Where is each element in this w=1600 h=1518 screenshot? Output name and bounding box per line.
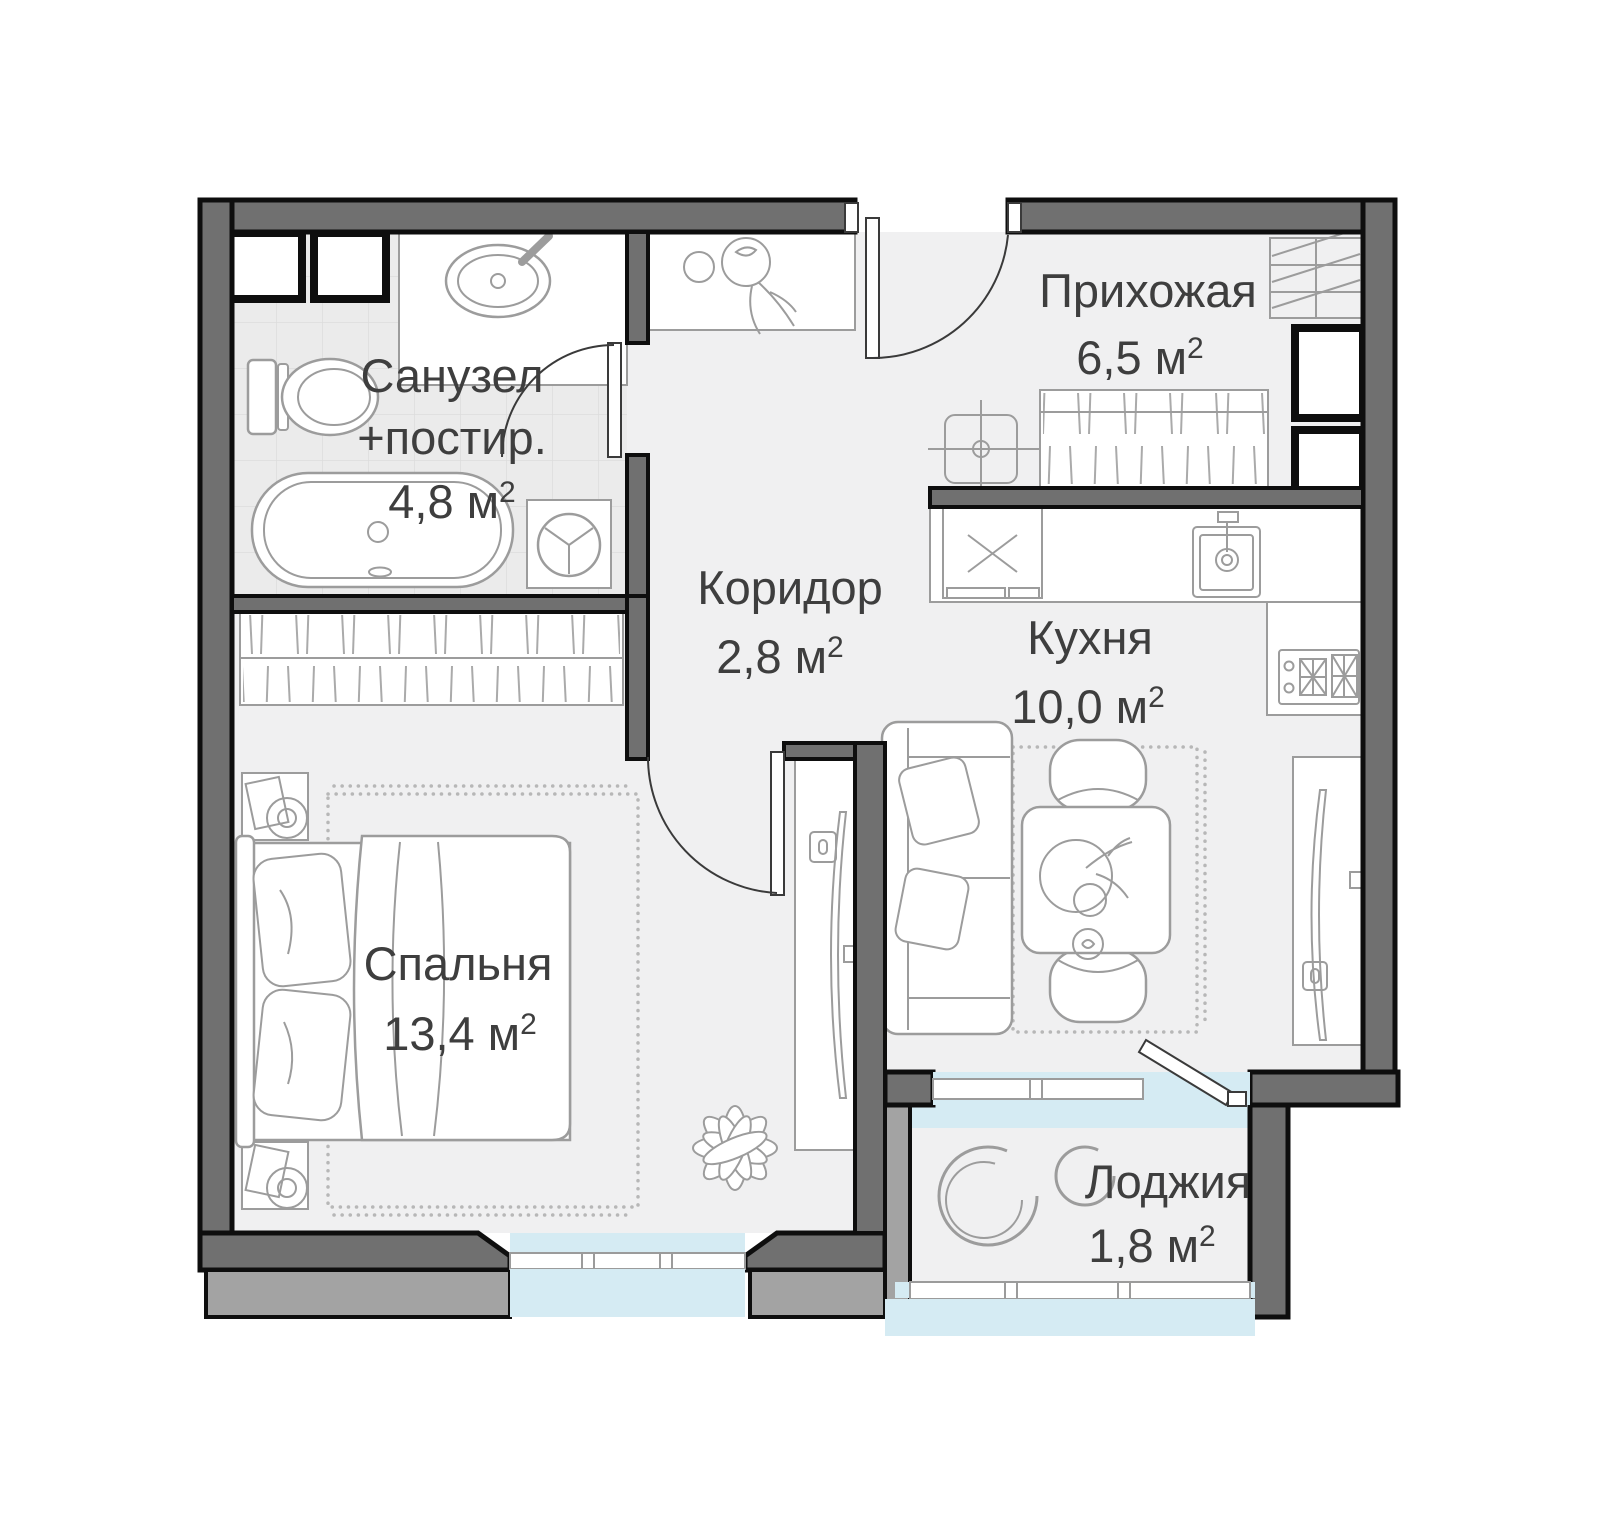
bedroom-tv-unit [795, 760, 856, 1150]
loggia-window-frame [910, 1282, 1250, 1299]
bathroom-east-wall-lower [627, 455, 648, 596]
appliance-x-icon [943, 507, 1042, 598]
wall-bottom-mid [745, 1233, 885, 1270]
loggia-top-sill [895, 1102, 1255, 1128]
nightstand-top [242, 773, 308, 840]
sofa-pillow-2 [894, 867, 971, 952]
loggia-right-wall [1250, 1105, 1288, 1317]
window-mullion [1030, 1079, 1042, 1099]
floor-plan-svg: Санузел +постир. 4,8 м2 Прихожая 6,5 м2 … [0, 0, 1600, 1518]
bedroom-label: Спальня [364, 937, 553, 990]
nightstand-bottom [242, 1142, 308, 1209]
bathroom-door-leaf [608, 343, 621, 457]
wall-left [200, 200, 232, 1270]
bedroom-area-label: 13,4 м2 [383, 1007, 537, 1060]
floorplan-page: Санузел +постир. 4,8 м2 Прихожая 6,5 м2 … [0, 0, 1600, 1518]
plant-icon [693, 1106, 777, 1190]
kitchen-bottom-stub [885, 1072, 933, 1105]
hallway-wardrobe-hangers [1043, 393, 1265, 484]
bathroom-closet-1 [224, 233, 302, 299]
corridor-label: Коридор [697, 561, 883, 614]
kitchen-area-label: 10,0 м2 [1011, 680, 1165, 733]
bedroom-window-outer [510, 1269, 745, 1317]
window-mullion [1118, 1282, 1130, 1299]
hallway-label: Прихожая [1039, 264, 1257, 317]
bathroom-east-wall-upper [627, 232, 648, 343]
bathroom-label-line2: +постир. [357, 411, 547, 464]
bed-pillow-2 [252, 988, 353, 1123]
washing-machine-icon [527, 500, 611, 588]
bathroom-label-line1: Санузел [360, 349, 543, 402]
bedroom-window-sill [510, 1233, 745, 1253]
corridor-console [648, 232, 855, 334]
tv-partition-wall [855, 743, 885, 1233]
wall-top-left [200, 200, 855, 232]
loggia-area-label: 1,8 м2 [1088, 1219, 1215, 1272]
kitchen-sofa [882, 722, 1012, 1034]
bedroom-door-leaf [771, 752, 784, 895]
bedroom-wardrobe [240, 612, 623, 705]
kitchen-tv-cabinet [1293, 757, 1363, 1045]
wall-right [1363, 200, 1395, 1072]
corridor-bedroom-wall [627, 596, 648, 759]
loggia-door-jamb [1228, 1092, 1246, 1106]
loggia-window-outer [885, 1299, 1255, 1336]
kitchen-bottom-wall-right [1250, 1072, 1398, 1105]
duct-shaft-2 [1295, 430, 1363, 492]
hallway-wardrobe [1040, 390, 1268, 487]
chair-bottom [1050, 950, 1146, 1022]
hallway-area-label: 6,5 м2 [1076, 331, 1203, 384]
loggia-outer-glazing [885, 1282, 1255, 1336]
wall-bottom-left [200, 1233, 510, 1270]
bathroom-area-label: 4,8 м2 [388, 475, 515, 528]
loggia-label: Лоджия [1085, 1155, 1252, 1208]
bedroom-window [510, 1233, 745, 1317]
hallway-kitchen-partition [930, 488, 1363, 507]
bathroom-closet-2 [314, 233, 386, 299]
entry-right-jamb [1008, 203, 1021, 232]
bathroom-south-wall [232, 596, 648, 612]
duct-shaft-1 [1295, 328, 1363, 418]
corridor-area-label: 2,8 м2 [716, 630, 843, 683]
kitchen-label: Кухня [1027, 611, 1153, 664]
entry-left-jamb [845, 203, 858, 232]
parapet-left [206, 1270, 510, 1317]
entry-door-leaf [866, 218, 879, 358]
bed-pillow-1 [252, 852, 353, 988]
window-mullion [660, 1253, 672, 1269]
bed-icon [236, 836, 570, 1147]
toilet-tank [248, 360, 276, 434]
bedroom-window-frame [510, 1253, 745, 1269]
wall-top-right [1008, 200, 1395, 232]
kitchen-tv-unit [1293, 757, 1363, 1045]
window-mullion [1005, 1282, 1017, 1299]
hob-burner-2-star [1332, 655, 1357, 697]
chair-top [1050, 740, 1146, 810]
hob-burner-1-star [1300, 659, 1326, 695]
window-mullion [582, 1253, 594, 1269]
nightstand-bottom-box [242, 1142, 308, 1209]
bed-headboard [236, 836, 254, 1147]
